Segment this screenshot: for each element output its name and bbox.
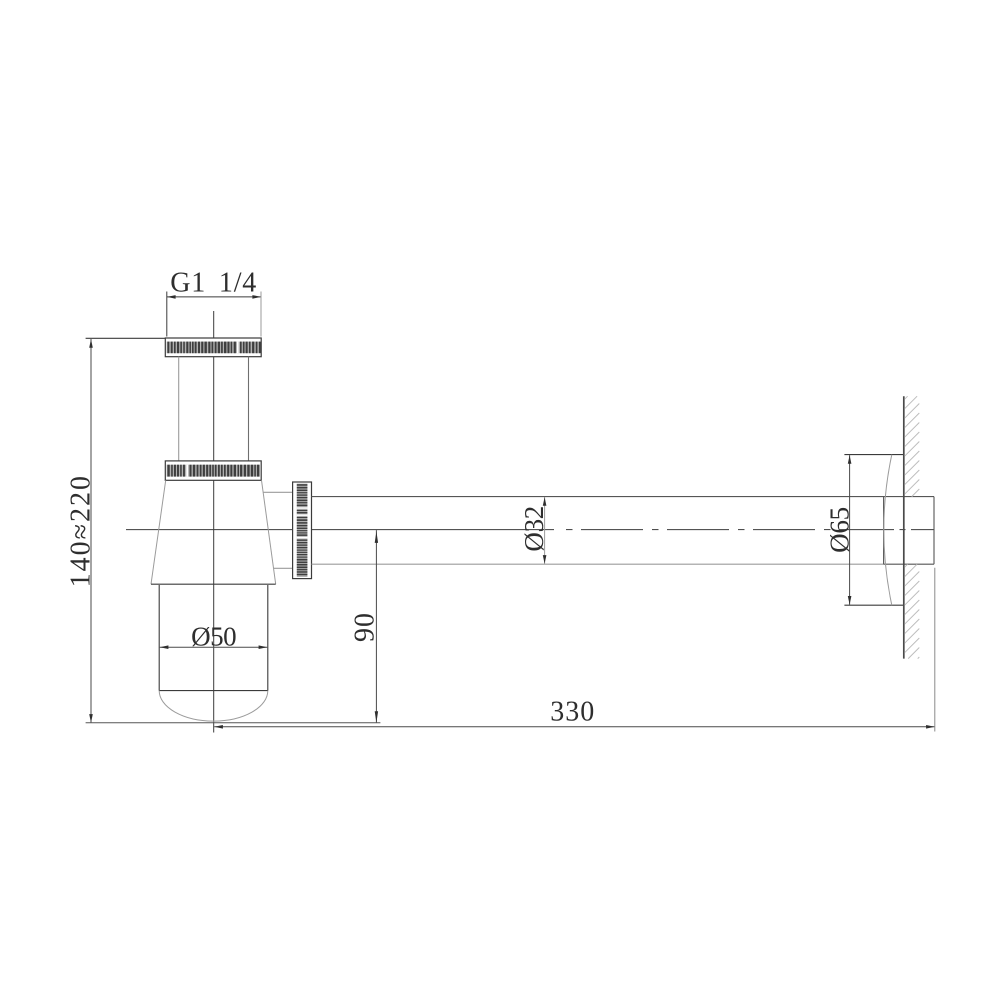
svg-text:90: 90: [349, 612, 380, 642]
svg-text:Ø32: Ø32: [519, 506, 549, 552]
svg-text:330: 330: [550, 697, 595, 728]
svg-text:G1 1/4: G1 1/4: [170, 268, 257, 299]
svg-text:140≈220: 140≈220: [65, 474, 96, 587]
svg-text:Ø65: Ø65: [824, 507, 854, 553]
